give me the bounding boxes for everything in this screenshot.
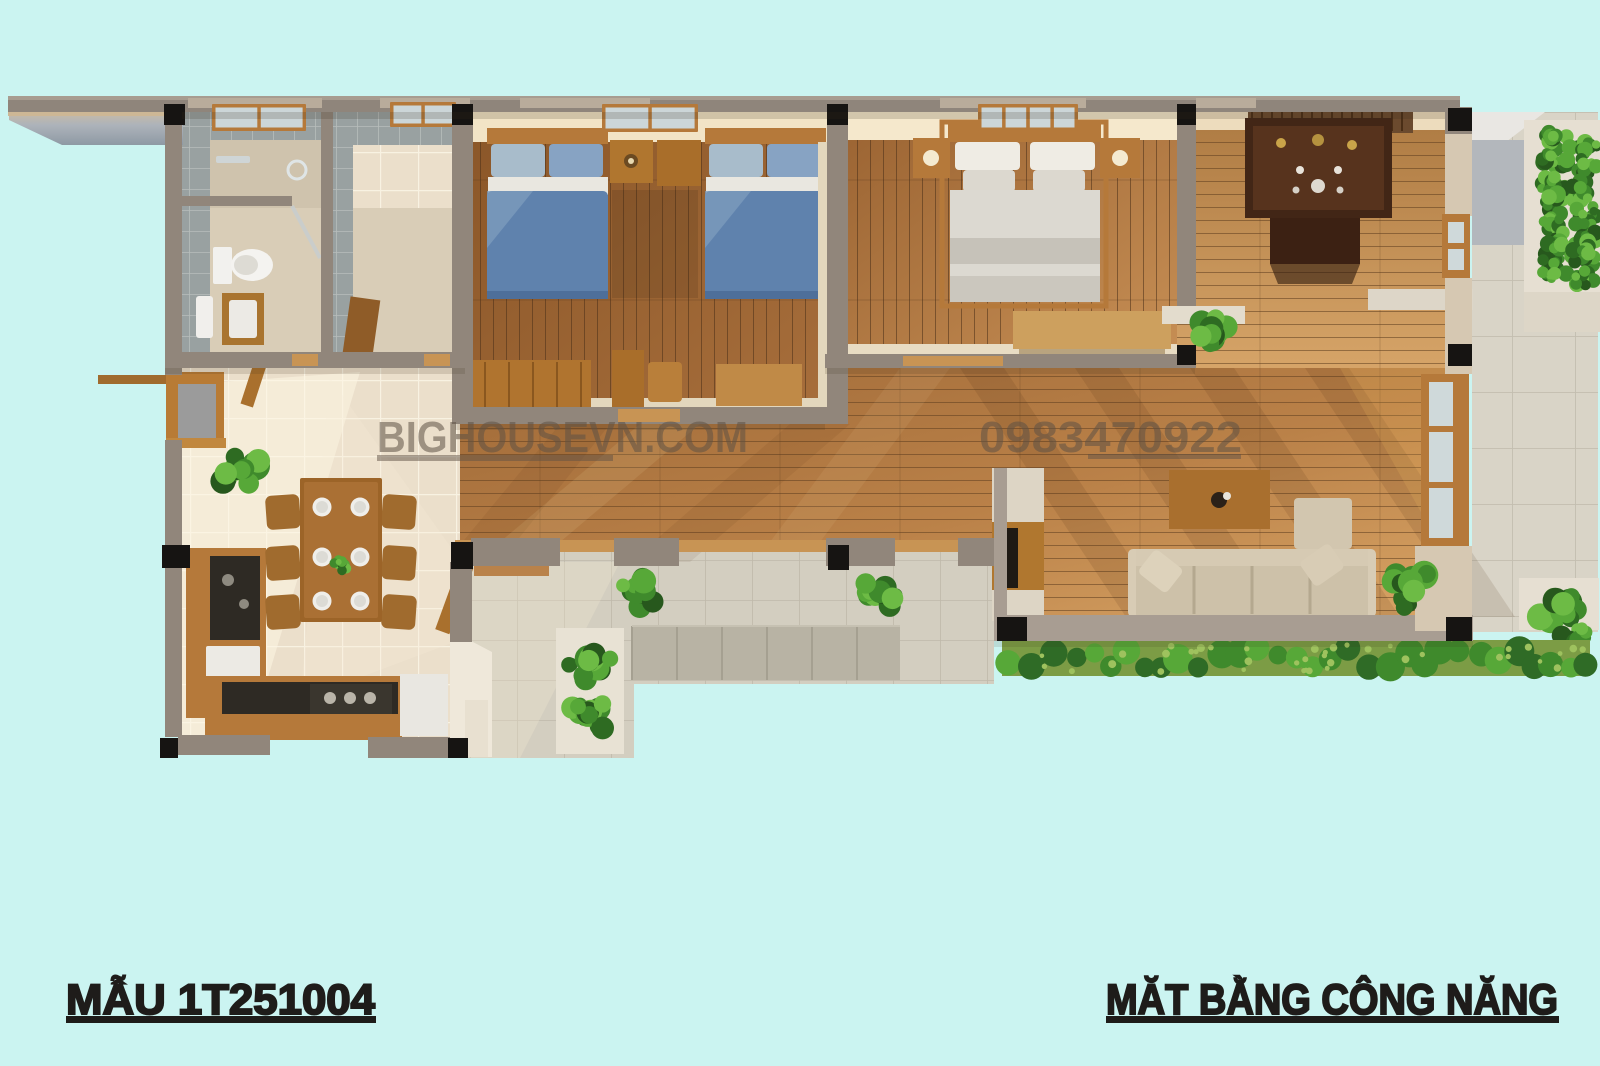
svg-text:BIGHOUSEVN.COM: BIGHOUSEVN.COM (377, 413, 748, 462)
